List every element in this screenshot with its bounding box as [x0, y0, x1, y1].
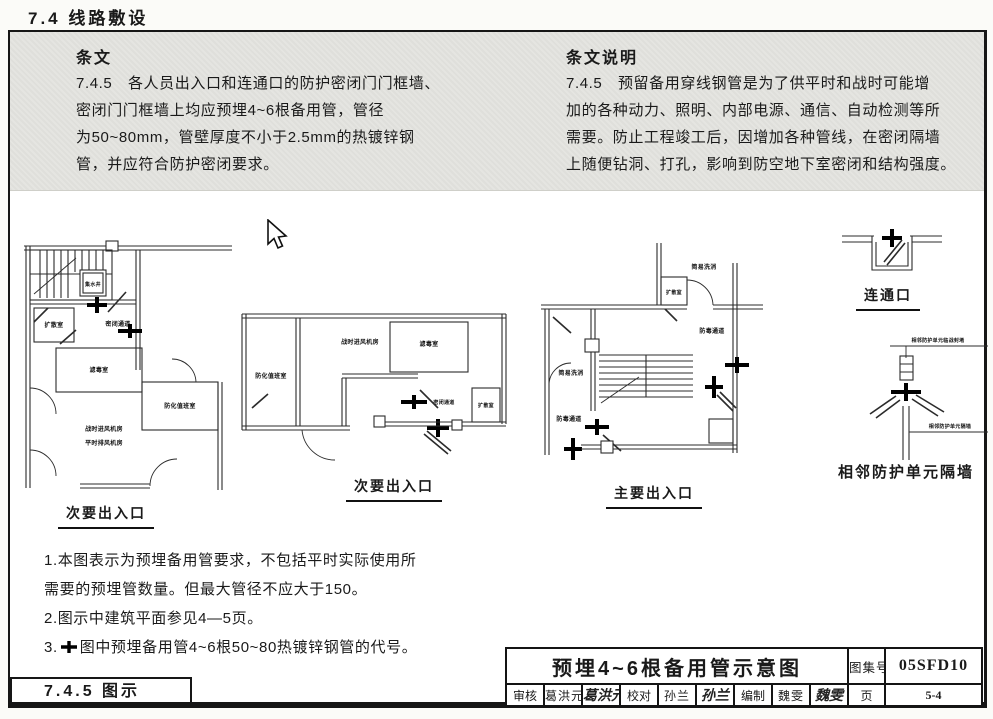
commentary-line: 7.4.5 预留备用穿线钢管是为了供平时和战时可能增 [566, 70, 956, 97]
wall-anchor [452, 420, 462, 430]
wall [545, 309, 549, 455]
provisions-line: 密闭门门框墙上均应预埋4~6根备用管，管径 [76, 97, 440, 124]
commentary-line: 加的各种动力、照明、内部电源、通信、自动检测等所 [566, 97, 956, 124]
door-arc [30, 388, 56, 414]
page-label: 页 [848, 684, 885, 706]
reserve-pipe-cross-icon [705, 376, 723, 398]
reserve-pipe-cross-icon [401, 395, 427, 409]
reviewer-name: 葛洪元 [544, 684, 582, 706]
reserve-pipe-cross-icon [585, 419, 609, 435]
unit-wall-caption: 相邻防护单元隔墙 [838, 461, 974, 482]
door-slash [34, 308, 48, 322]
plan-main-exit: 简易洗消 扩散室 简易洗消 防毒通道 防毒通道 [541, 243, 763, 483]
room-label-wash-left: 简易洗消 [558, 369, 583, 377]
plan-secondary-exit-1: 集水井 扩散室 密闭通道 滤毒室 防化值班室 战时进风机房 平时排风机房 [20, 238, 232, 490]
reserve-pipe-cross-icon [60, 640, 78, 654]
proofreader-signature: 孙兰 [696, 684, 734, 706]
plan3-caption: 主要出入口 [606, 483, 702, 509]
wall [136, 250, 140, 370]
plan2-caption: 次要出入口 [346, 476, 442, 502]
note-line: 2.图示中建筑平面参见4—5页。 [44, 604, 417, 633]
wall [80, 484, 150, 488]
door-slash [665, 309, 677, 321]
commentary-paragraph: 7.4.5 预留备用穿线钢管是为了供平时和战时可能增 加的各种动力、照明、内部电… [566, 70, 956, 178]
sheet-title: 预埋4~6根备用管示意图 [506, 648, 848, 684]
room-label-filter: 滤毒室 [420, 340, 439, 348]
provisions-paragraph: 7.4.5 各人员出入口和连通口的防护密闭门门框墙、 密闭门门框墙上均应预埋4~… [76, 70, 440, 178]
drawing-notes: 1.本图表示为预埋备用管要求，不包括平时实际使用所 需要的预埋管数量。但最大管径… [44, 546, 417, 662]
room-label-sump: 集水井 [84, 281, 101, 288]
room-label-fan-1: 战时进风机房 [85, 425, 123, 433]
room-label-wash-top: 简易洗消 [691, 263, 716, 271]
connector-caption: 连通口 [856, 285, 920, 311]
atlas-number-label: 图集号 [848, 648, 885, 684]
atlas-number: 05SFD10 [885, 648, 982, 684]
commentary-line: 需要。防止工程竣工后，因增加各种管线，在密闭隔墙 [566, 124, 956, 151]
provisions-line: 管，并应符合防护密闭要求。 [76, 151, 440, 178]
room-label-gas-passage-right: 防毒通道 [699, 327, 724, 335]
wall [26, 246, 30, 488]
wall-segment [900, 356, 913, 380]
wall [24, 246, 232, 250]
room-label-diffusion: 扩散室 [45, 321, 64, 329]
proofreader-name: 孙兰 [658, 684, 696, 706]
stair-arrow [601, 377, 639, 403]
reviewer-label: 审核 [506, 684, 544, 706]
door-slash [420, 390, 438, 408]
label-wartime-blocking: 相邻防护单元临战封堵 [911, 337, 964, 344]
page-number: 5-4 [885, 684, 982, 706]
wall-anchor [601, 441, 613, 453]
note-line: 需要的预埋管数量。但最大管径不应大于150。 [44, 575, 417, 604]
door-slash [252, 394, 268, 408]
wall [541, 305, 763, 309]
compiler-name: 魏雯 [772, 684, 810, 706]
wall [342, 378, 346, 426]
splay [912, 395, 944, 416]
title-block: 预埋4~6根备用管示意图 图集号 05SFD10 审核 葛洪元 葛洪元 校对 孙… [505, 647, 983, 707]
figure-tab: 7.4.5 图示 [10, 677, 192, 704]
provisions-line: 7.4.5 各人员出入口和连通口的防护密闭门门框墙、 [76, 70, 440, 97]
plan1-caption: 次要出入口 [58, 503, 154, 529]
door-arc [30, 450, 56, 476]
room-label-fan-2: 平时排风机房 [85, 439, 123, 447]
door-arc [687, 280, 713, 305]
wall [502, 314, 506, 424]
note-line: 1.本图表示为预埋备用管要求，不包括平时实际使用所 [44, 546, 417, 575]
wall [242, 314, 506, 318]
mouse-pointer-icon [266, 219, 290, 251]
door-arc [150, 459, 177, 486]
reserve-pipe-cross-icon [564, 438, 582, 460]
wall [218, 382, 222, 490]
section-header: 7.4 线路敷设 [28, 4, 148, 29]
door-slash [884, 240, 905, 265]
reviewer-signature: 葛洪元 [582, 684, 620, 706]
wall [30, 300, 136, 304]
wall [657, 243, 661, 305]
door-arc [172, 359, 196, 382]
splay [870, 396, 900, 418]
wall [342, 374, 418, 378]
room-label-sealed-passage: 密闭通道 [433, 399, 454, 406]
wall [591, 309, 595, 411]
reserve-pipe-cross-icon [87, 297, 107, 313]
plan-secondary-exit-2: 防化值班室 战时进风机房 滤毒室 密闭通道 扩散室 [238, 302, 510, 466]
room-label-duty: 防化值班室 [164, 402, 196, 410]
note-line: 3.图中预埋备用管4~6根50~80热镀锌钢管的代号。 [44, 633, 417, 662]
door-arc [302, 430, 335, 460]
label-partition-wall: 相邻防护单元隔墙 [929, 423, 971, 430]
compiler-label: 编制 [734, 684, 772, 706]
room-label-sealed-passage: 密闭通道 [105, 320, 130, 328]
room-label-diffusion: 扩散室 [478, 402, 494, 409]
commentary-heading: 条文说明 [566, 44, 638, 68]
commentary-line: 上随便钻洞、打孔，影响到防空地下室密闭和结构强度。 [566, 151, 956, 178]
reserve-pipe-cross-icon [725, 357, 749, 373]
reserve-pipe-cross-icon [891, 383, 921, 401]
provisions-line: 为50~80mm，管壁厚度不小于2.5mm的热镀锌钢 [76, 124, 440, 151]
wall [903, 406, 909, 460]
wall [242, 314, 246, 430]
room-label-fan: 战时进风机房 [341, 338, 379, 346]
door-slash [553, 317, 571, 333]
compiler-signature: 魏雯 [810, 684, 848, 706]
wall-anchor [585, 339, 599, 352]
standard-atlas-page: 7.4 线路敷设 条文 7.4.5 各人员出入口和连通口的防护密闭门门框墙、 密… [0, 0, 993, 719]
room-label-duty: 防化值班室 [255, 372, 287, 380]
wall [378, 422, 506, 426]
wall-anchor [374, 416, 385, 427]
room-label-filter: 滤毒室 [90, 366, 109, 374]
small-room [709, 419, 733, 443]
wall [296, 318, 300, 426]
detail-unit-partition-wall: 相邻防护单元临战封堵 相邻防护单元隔墙 [838, 328, 990, 462]
proofreader-label: 校对 [620, 684, 658, 706]
room-label-gas-passage-left: 防毒通道 [556, 415, 581, 423]
wall [242, 426, 350, 430]
wall-joints [900, 364, 913, 372]
provisions-heading: 条文 [76, 44, 112, 68]
detail-connector-opening [842, 224, 942, 286]
room-label-diffusion: 扩散室 [666, 289, 682, 296]
door-slash [108, 292, 126, 312]
